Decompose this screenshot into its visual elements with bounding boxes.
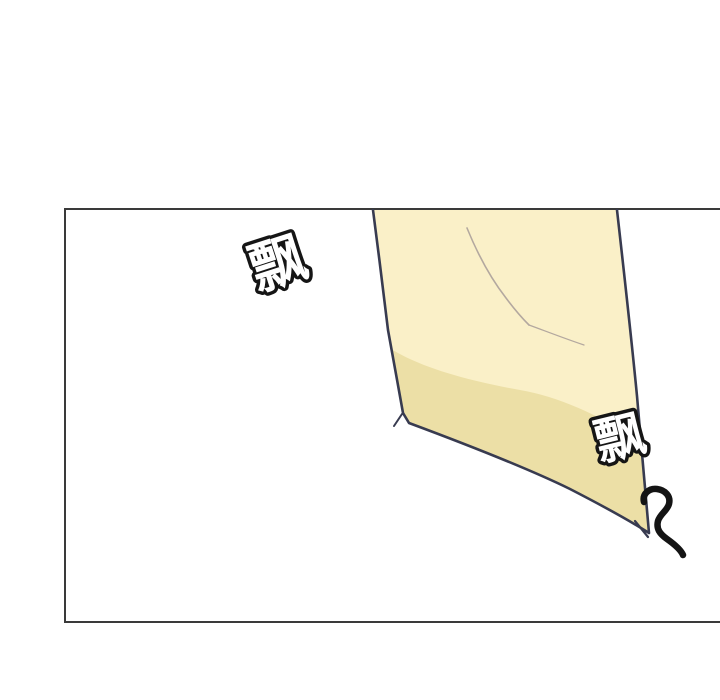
sfx-flutter-top: 飘 [242,224,315,301]
panel-artwork: 飘 飘 [0,0,720,700]
page: 飘 飘 [0,0,720,700]
sfx-flutter-top-text: 飘 [242,224,315,301]
cloth-corner-spur-line [394,414,402,426]
motion-squiggle-icon [644,489,683,555]
